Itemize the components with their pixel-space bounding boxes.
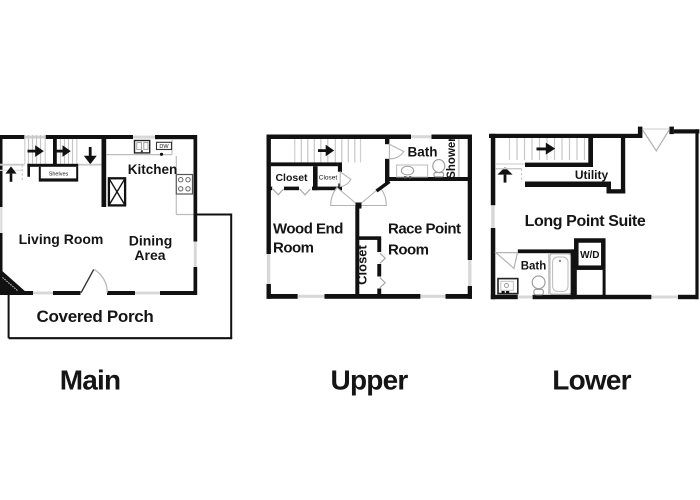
svg-text:Closet: Closet [275, 172, 308, 184]
svg-text:Living Room: Living Room [19, 231, 104, 247]
svg-text:Bath: Bath [408, 145, 438, 160]
svg-text:Main: Main [60, 365, 121, 396]
svg-text:Shower: Shower [446, 137, 458, 179]
svg-text:Area: Area [134, 247, 165, 263]
svg-text:Utility: Utility [575, 168, 609, 182]
svg-text:Upper: Upper [331, 365, 409, 396]
svg-text:Closet: Closet [355, 244, 370, 284]
svg-text:Shelves: Shelves [49, 172, 69, 178]
svg-text:Closet: Closet [319, 174, 338, 181]
svg-text:Long Point Suite: Long Point Suite [525, 213, 646, 230]
svg-text:Lower: Lower [552, 365, 631, 396]
svg-text:W/D: W/D [580, 250, 599, 261]
svg-text:Kitchen: Kitchen [128, 162, 178, 177]
svg-text:Covered Porch: Covered Porch [36, 307, 153, 326]
svg-text:Room: Room [273, 240, 314, 257]
svg-text:Race Point: Race Point [388, 221, 461, 238]
svg-text:Bath: Bath [521, 261, 547, 273]
svg-text:Wood End: Wood End [273, 221, 343, 238]
svg-text:DW: DW [159, 144, 169, 150]
svg-text:Room: Room [388, 242, 429, 259]
